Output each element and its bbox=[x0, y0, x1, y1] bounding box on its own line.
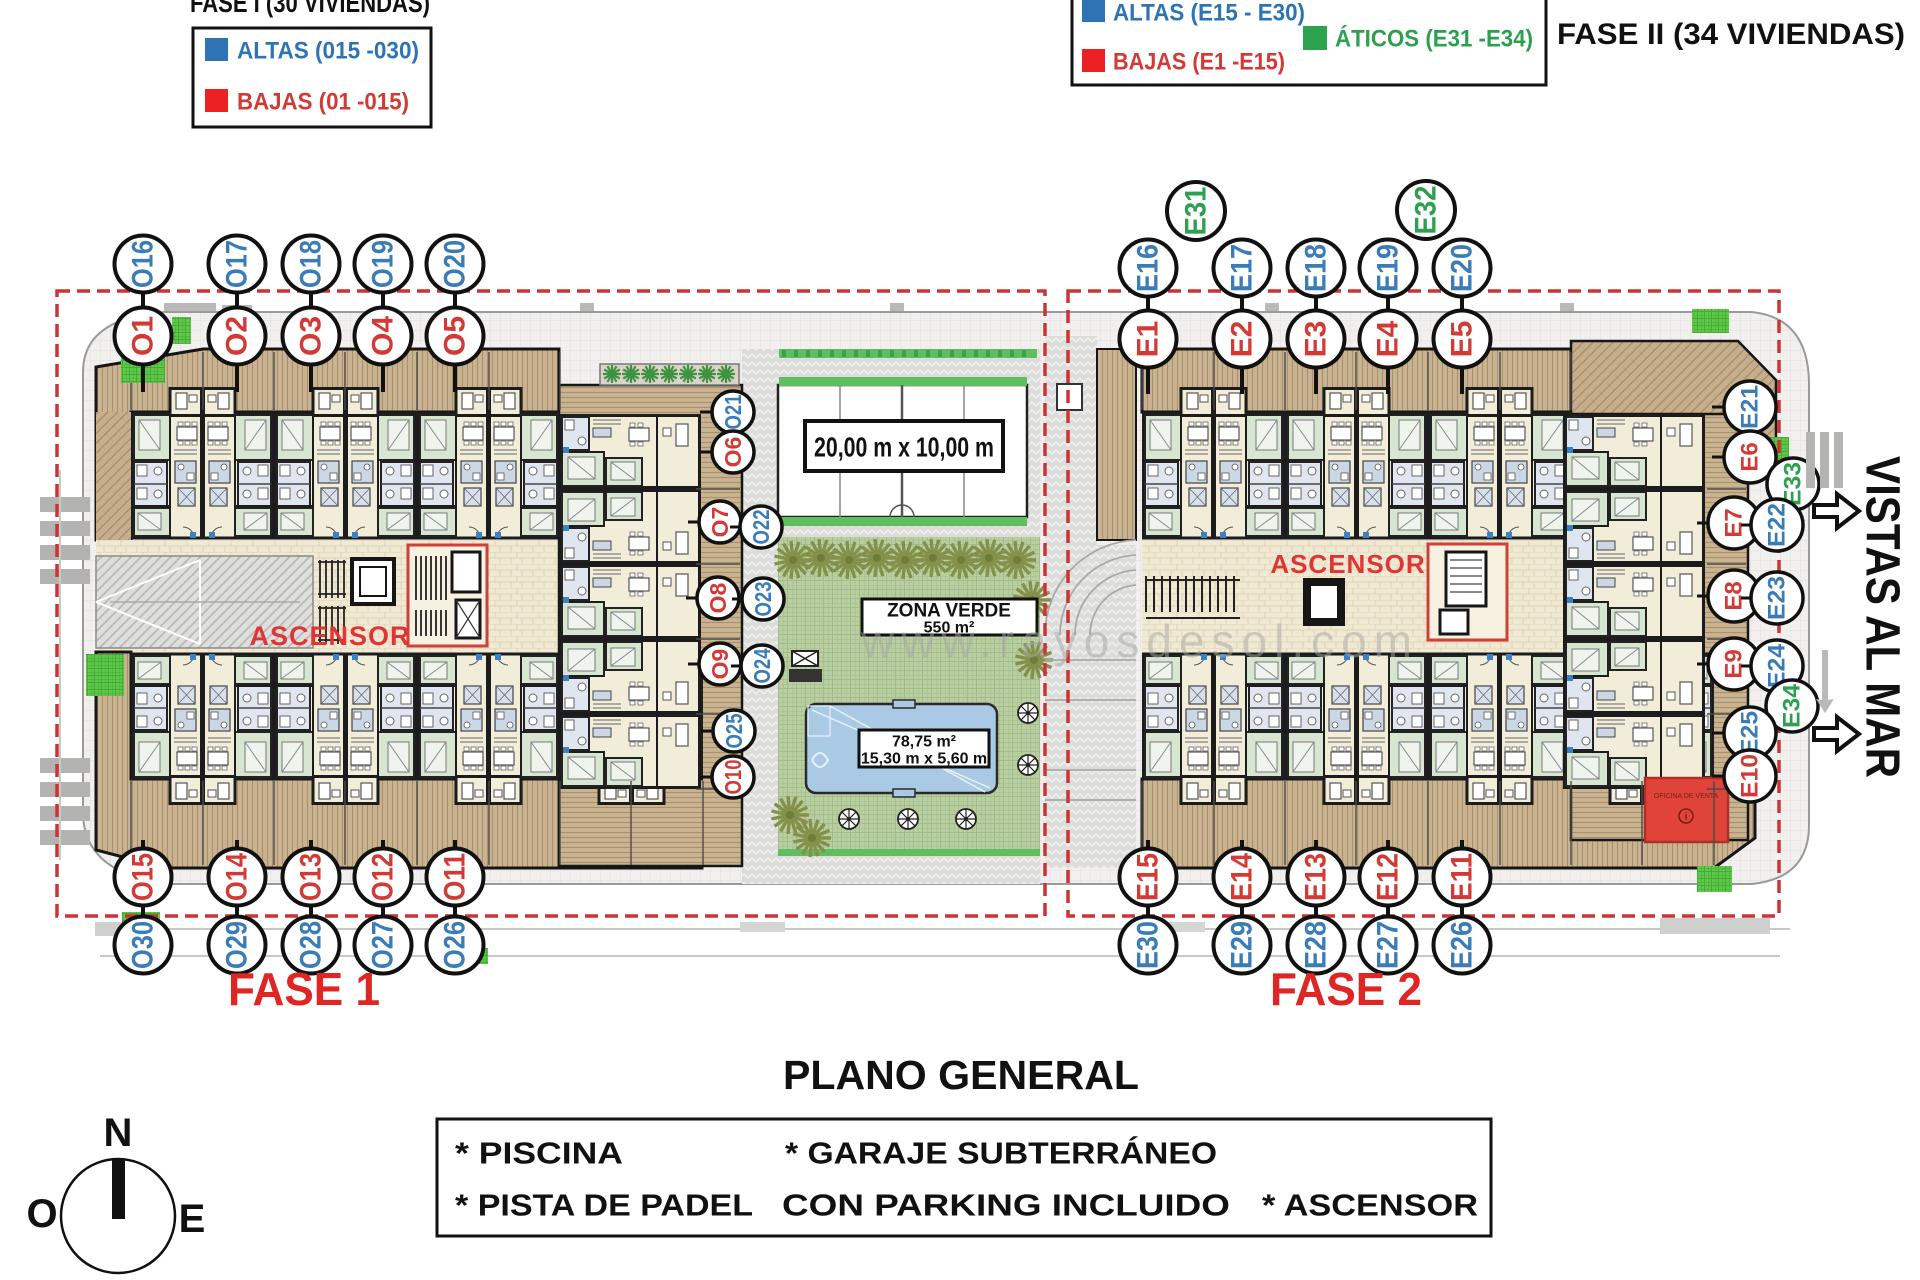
svg-text:PLANO GENERAL: PLANO GENERAL bbox=[783, 1052, 1139, 1098]
svg-text:FASE 1: FASE 1 bbox=[228, 963, 380, 1015]
svg-text:E19: E19 bbox=[1372, 244, 1405, 292]
svg-text:E30: E30 bbox=[1132, 921, 1165, 969]
svg-text:E23: E23 bbox=[1764, 576, 1791, 620]
svg-text:* GARAJE SUBTERRÁNEO: * GARAJE SUBTERRÁNEO bbox=[785, 1136, 1217, 1171]
svg-text:N: N bbox=[104, 1111, 133, 1155]
svg-text:E10: E10 bbox=[1737, 754, 1764, 798]
svg-text:E29: E29 bbox=[1226, 921, 1259, 969]
svg-text:O23: O23 bbox=[750, 582, 776, 617]
svg-text:78,75 m²: 78,75 m² bbox=[892, 734, 956, 751]
svg-text:E28: E28 bbox=[1300, 921, 1333, 969]
svg-text:E13: E13 bbox=[1300, 853, 1333, 901]
svg-text:E22: E22 bbox=[1764, 503, 1791, 547]
svg-text:O27: O27 bbox=[367, 921, 400, 969]
svg-text:E34: E34 bbox=[1779, 683, 1806, 728]
svg-text:E16: E16 bbox=[1132, 244, 1165, 292]
svg-text:O26: O26 bbox=[439, 921, 472, 969]
svg-text:O25: O25 bbox=[721, 713, 747, 748]
svg-text:BAJAS (E1 -E15): BAJAS (E1 -E15) bbox=[1113, 49, 1285, 76]
svg-text:O19: O19 bbox=[367, 240, 400, 288]
svg-text:ALTAS (015 -030): ALTAS (015 -030) bbox=[237, 38, 419, 65]
svg-text:FASE 2: FASE 2 bbox=[1270, 963, 1422, 1015]
svg-text:E31: E31 bbox=[1180, 187, 1213, 236]
svg-text:E20: E20 bbox=[1446, 244, 1479, 292]
svg-text:O16: O16 bbox=[127, 240, 160, 288]
svg-text:E4: E4 bbox=[1372, 320, 1405, 357]
svg-text:O6: O6 bbox=[720, 437, 746, 468]
svg-text:O18: O18 bbox=[295, 240, 328, 288]
svg-text:FASE II (34 VIVIENDAS): FASE II (34 VIVIENDAS) bbox=[1557, 18, 1905, 51]
svg-text:* PISTA DE PADEL: * PISTA DE PADEL bbox=[455, 1188, 753, 1223]
svg-text:E9: E9 bbox=[1721, 649, 1748, 678]
svg-text:E: E bbox=[179, 1197, 206, 1241]
svg-text:O: O bbox=[26, 1192, 57, 1236]
svg-text:O4: O4 bbox=[367, 316, 400, 356]
svg-text:E1: E1 bbox=[1132, 321, 1165, 358]
svg-text:i: i bbox=[1685, 812, 1688, 823]
svg-text:E8: E8 bbox=[1721, 581, 1748, 610]
svg-text:O15: O15 bbox=[127, 853, 160, 901]
svg-text:O3: O3 bbox=[295, 316, 328, 356]
svg-text:O30: O30 bbox=[127, 921, 160, 969]
svg-text:O21: O21 bbox=[720, 394, 746, 429]
svg-text:O22: O22 bbox=[748, 510, 774, 545]
svg-text:E18: E18 bbox=[1300, 244, 1333, 292]
svg-text:E32: E32 bbox=[1410, 186, 1443, 235]
svg-text:E27: E27 bbox=[1372, 921, 1405, 969]
svg-text:O24: O24 bbox=[749, 648, 775, 683]
svg-text:E3: E3 bbox=[1300, 321, 1333, 358]
svg-text:15,30 m x 5,60 m: 15,30 m x 5,60 m bbox=[861, 751, 987, 768]
svg-text:O7: O7 bbox=[707, 507, 733, 538]
svg-text:E2: E2 bbox=[1226, 321, 1259, 358]
svg-text:OFICINA DE VENTA: OFICINA DE VENTA bbox=[1654, 793, 1719, 800]
svg-text:E7: E7 bbox=[1721, 508, 1748, 537]
svg-text:BAJAS (01 -015): BAJAS (01 -015) bbox=[237, 89, 409, 116]
svg-text:E26: E26 bbox=[1446, 921, 1479, 969]
svg-text:* PISCINA: * PISCINA bbox=[455, 1136, 623, 1171]
svg-text:O11: O11 bbox=[439, 853, 472, 901]
svg-text:O8: O8 bbox=[705, 582, 731, 613]
svg-text:E15: E15 bbox=[1132, 853, 1165, 901]
svg-text:* ASCENSOR: * ASCENSOR bbox=[1262, 1188, 1478, 1223]
svg-text:O28: O28 bbox=[295, 921, 328, 969]
svg-text:ASCENSOR: ASCENSOR bbox=[249, 621, 410, 651]
svg-text:E17: E17 bbox=[1226, 244, 1259, 292]
svg-text:20,00 m x 10,00 m: 20,00 m x 10,00 m bbox=[814, 432, 994, 463]
svg-text:O20: O20 bbox=[439, 240, 472, 288]
svg-text:O1: O1 bbox=[127, 316, 160, 356]
svg-text:ASCENSOR: ASCENSOR bbox=[1270, 549, 1425, 579]
svg-text:E14: E14 bbox=[1226, 853, 1259, 901]
svg-text:O14: O14 bbox=[221, 853, 254, 901]
svg-text:E21: E21 bbox=[1737, 385, 1764, 429]
svg-text:E11: E11 bbox=[1446, 853, 1479, 901]
svg-text:O29: O29 bbox=[221, 921, 254, 969]
svg-text:O2: O2 bbox=[221, 316, 254, 356]
svg-text:O17: O17 bbox=[221, 240, 254, 288]
svg-text:E6: E6 bbox=[1737, 442, 1764, 471]
svg-text:VISTAS AL MAR: VISTAS AL MAR bbox=[1856, 456, 1909, 778]
svg-text:O10: O10 bbox=[720, 760, 746, 795]
svg-text:O5: O5 bbox=[439, 316, 472, 356]
svg-text:O12: O12 bbox=[367, 853, 400, 901]
svg-text:www.rayosdesol.com: www.rayosdesol.com bbox=[860, 615, 1419, 667]
svg-text:O9: O9 bbox=[707, 649, 733, 680]
svg-text:FASE I (30 VIVIENDAS): FASE I (30 VIVIENDAS) bbox=[190, 0, 430, 18]
svg-text:ÁTICOS (E31 -E34): ÁTICOS (E31 -E34) bbox=[1335, 25, 1533, 53]
svg-text:E5: E5 bbox=[1446, 321, 1479, 358]
svg-text:O13: O13 bbox=[295, 853, 328, 901]
svg-text:E12: E12 bbox=[1372, 853, 1405, 901]
svg-text:CON PARKING INCLUIDO: CON PARKING INCLUIDO bbox=[782, 1188, 1230, 1223]
svg-text:ALTAS (E15 - E30): ALTAS (E15 - E30) bbox=[1113, 0, 1305, 27]
